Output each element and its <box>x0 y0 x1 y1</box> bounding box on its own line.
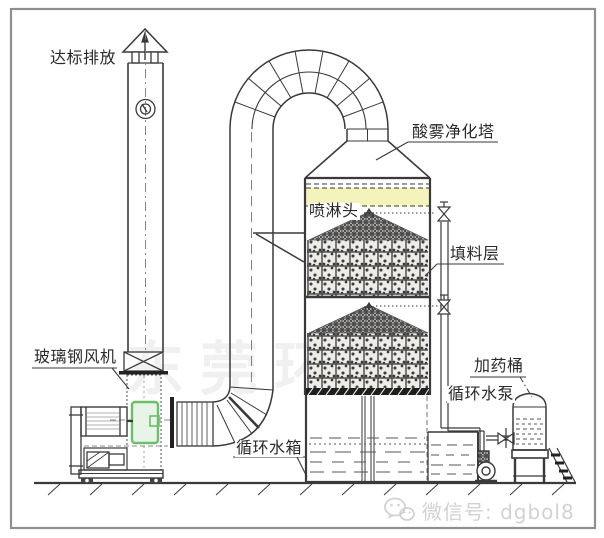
diagram-page: 东莞环保 <box>0 0 604 538</box>
circulating-pump <box>475 451 497 481</box>
frp-fan <box>69 352 273 483</box>
label-packing-layer: 填料层 <box>449 246 501 263</box>
fan-base-skid <box>79 470 163 483</box>
watermark: 微信号: dgbol8 <box>383 496 575 525</box>
wechat-icon <box>383 497 415 524</box>
label-purification-tower: 酸雾净化塔 <box>411 124 496 141</box>
valve-upper <box>438 202 450 221</box>
circulating-water-tank <box>306 395 478 482</box>
label-emission-outlet: 达标排放 <box>49 50 117 67</box>
barrel-liquid-lines <box>516 419 543 444</box>
belt-drive-unit <box>84 446 168 470</box>
label-circulating-water-tank: 循环水箱 <box>235 440 303 457</box>
watermark-text: 微信号: dgbol8 <box>422 496 575 525</box>
packing-layer-lower <box>307 333 428 388</box>
barrel-stand <box>512 450 548 482</box>
exhaust-stack <box>123 29 167 352</box>
dosing-barrel <box>512 377 575 482</box>
label-spray-head: 喷淋头 <box>308 203 360 220</box>
water-level-lines <box>309 438 475 474</box>
packing-layer-upper <box>307 240 428 296</box>
barrel-valve <box>498 428 514 448</box>
flex-connector <box>170 397 213 448</box>
label-dosing-barrel: 加药桶 <box>473 358 525 375</box>
fan-inlet-highlight <box>132 402 158 443</box>
diagram-canvas <box>0 0 604 538</box>
label-circulating-water-pump: 循环水泵 <box>447 386 515 403</box>
label-frp-fan: 玻璃钢风机 <box>33 349 118 366</box>
barrel-ladder <box>549 448 575 482</box>
label-leaders <box>32 142 526 477</box>
ground <box>34 483 576 495</box>
